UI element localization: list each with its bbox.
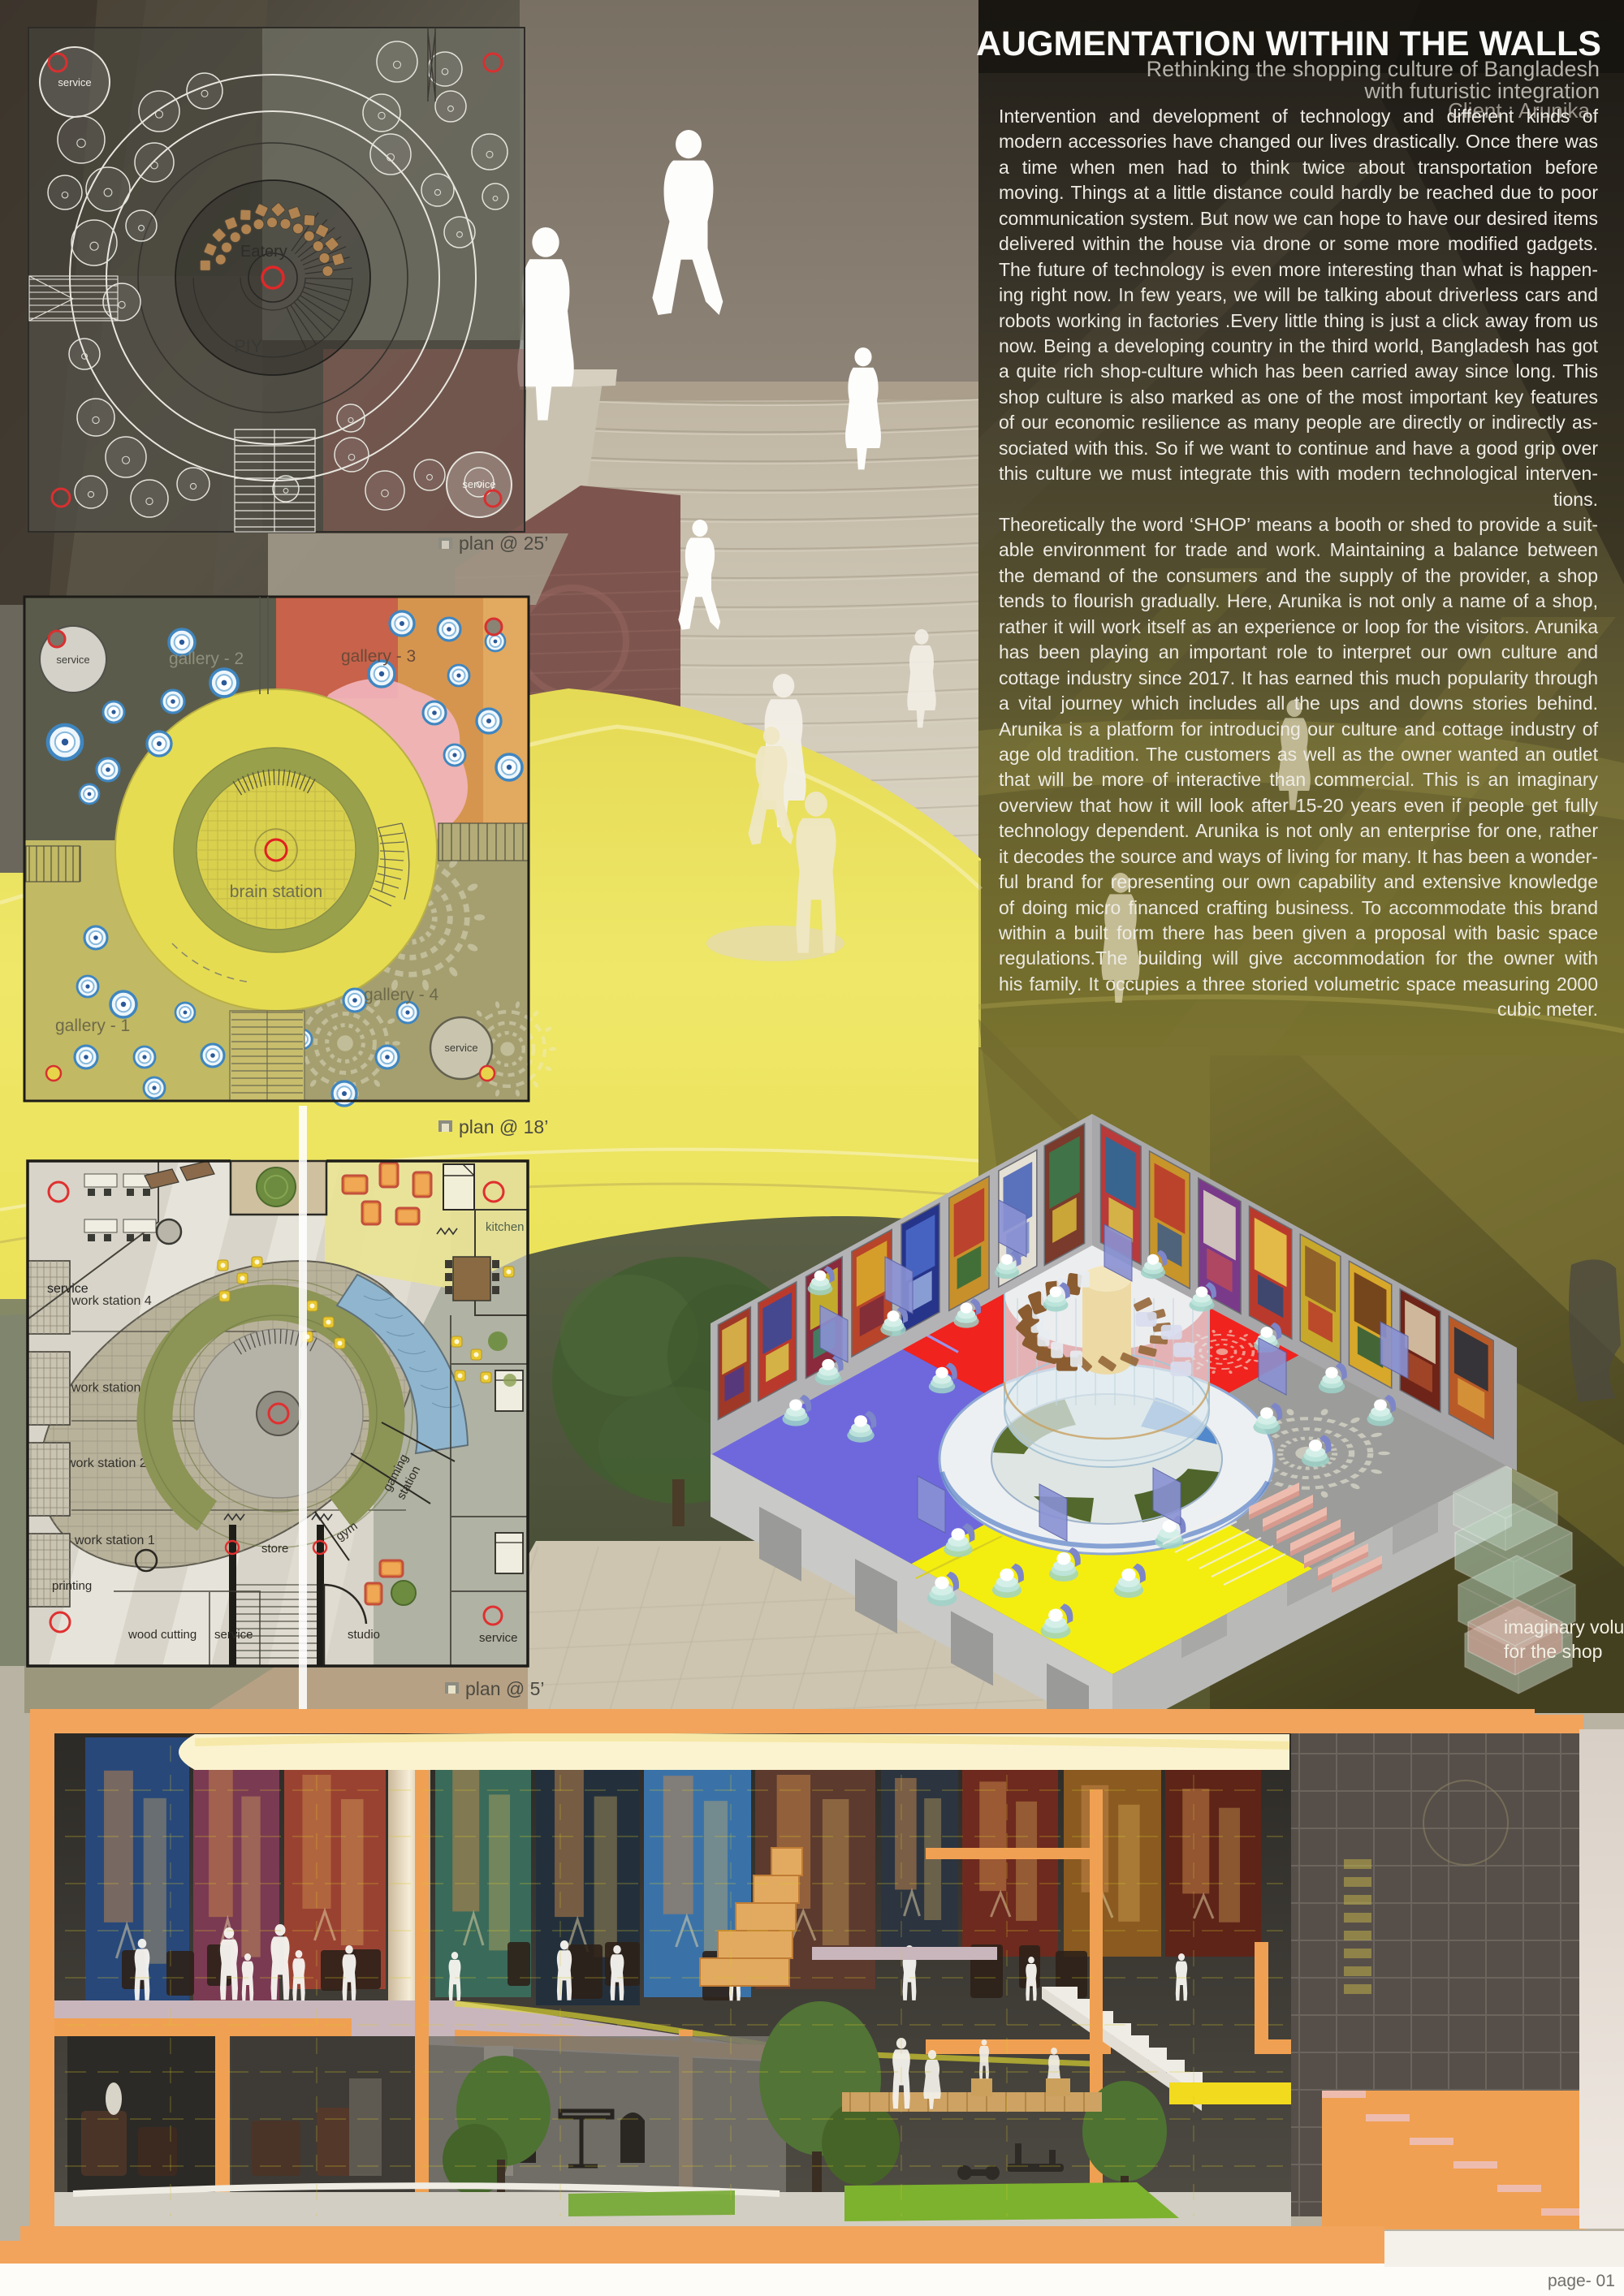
svg-text:kitchen: kitchen	[486, 1220, 525, 1234]
svg-text:work station 4: work station 4	[71, 1294, 152, 1308]
svg-text:plan @ 18’: plan @ 18’	[459, 1116, 548, 1137]
svg-text:service: service	[462, 478, 495, 490]
svg-text:plan @ 5’: plan @ 5’	[465, 1678, 545, 1699]
svg-text:gallery - 3: gallery - 3	[341, 647, 416, 666]
svg-text:gallery - 4: gallery - 4	[364, 986, 439, 1004]
svg-text:plan @ 25’: plan @ 25’	[459, 533, 548, 554]
svg-text:page- 01: page- 01	[1548, 2272, 1615, 2290]
svg-text:service: service	[56, 654, 89, 666]
svg-text:PIY: PIY	[234, 336, 263, 356]
svg-text:work station 1: work station 1	[74, 1534, 155, 1547]
svg-text:store: store	[261, 1542, 288, 1556]
svg-text:service: service	[214, 1628, 253, 1642]
svg-text:for the shop: for the shop	[1504, 1641, 1602, 1662]
svg-text:service: service	[47, 1282, 89, 1296]
svg-text:gallery - 2: gallery - 2	[169, 650, 244, 668]
svg-text:studio: studio	[348, 1628, 380, 1642]
svg-text:Eatery: Eatery	[240, 243, 287, 261]
svg-text:service: service	[444, 1042, 477, 1054]
svg-text:imaginary volume: imaginary volume	[1504, 1616, 1624, 1638]
svg-text:work station 2: work station 2	[66, 1457, 147, 1470]
svg-text:gallery - 1: gallery - 1	[55, 1016, 130, 1035]
svg-text:printing: printing	[52, 1579, 92, 1593]
svg-text:brain station: brain station	[230, 883, 322, 901]
svg-text:service: service	[479, 1631, 518, 1645]
svg-text:service: service	[58, 76, 91, 88]
svg-text:wood cutting: wood cutting	[127, 1628, 197, 1642]
